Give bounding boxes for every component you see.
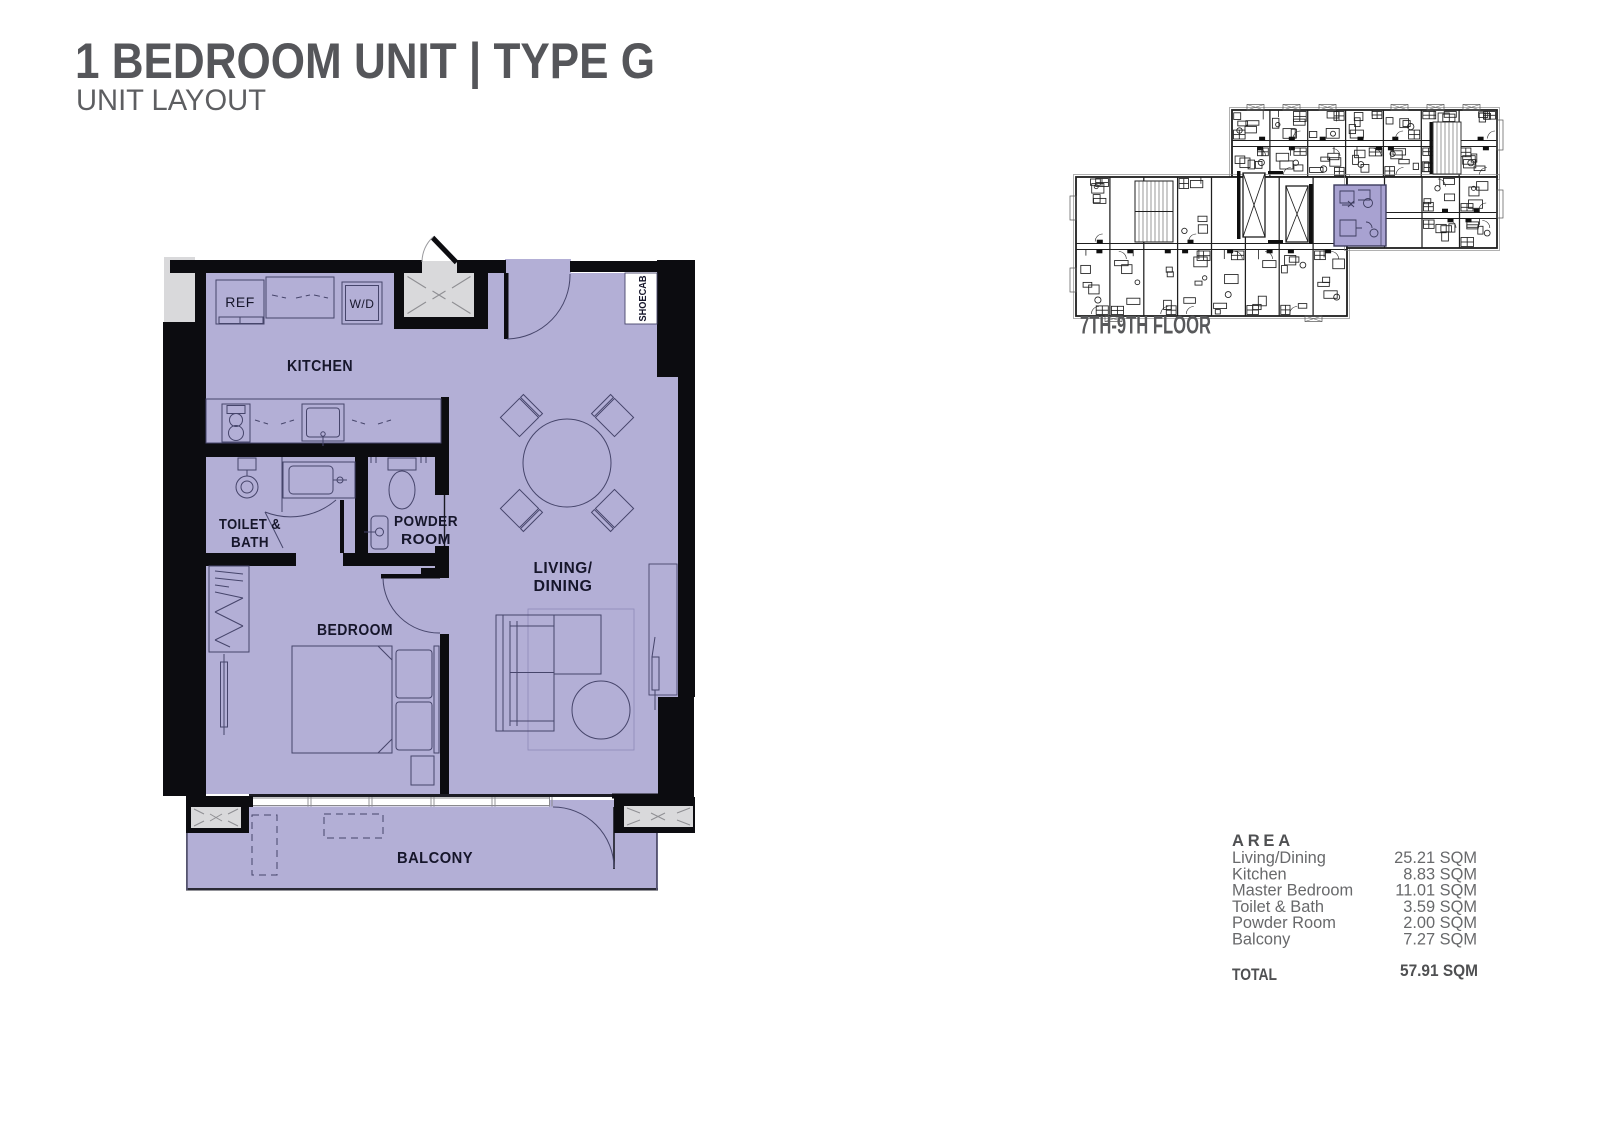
- svg-text:AREA: AREA: [1232, 832, 1294, 850]
- svg-text:REF: REF: [225, 294, 255, 310]
- svg-text:BALCONY: BALCONY: [397, 850, 473, 867]
- svg-text:7.27 SQM: 7.27 SQM: [1403, 931, 1477, 949]
- svg-text:3.59 SQM: 3.59 SQM: [1403, 898, 1477, 916]
- svg-text:BEDROOM: BEDROOM: [317, 622, 393, 639]
- svg-text:Toilet & Bath: Toilet & Bath: [1232, 898, 1324, 916]
- svg-text:DINING: DINING: [534, 578, 593, 595]
- svg-text:TOILET &: TOILET &: [219, 516, 281, 533]
- svg-text:7TH-9TH FLOOR: 7TH-9TH FLOOR: [1080, 312, 1211, 340]
- svg-text:Powder Room: Powder Room: [1232, 914, 1336, 932]
- svg-text:2.00 SQM: 2.00 SQM: [1403, 914, 1477, 932]
- svg-text:8.83 SQM: 8.83 SQM: [1403, 865, 1477, 883]
- svg-text:KITCHEN: KITCHEN: [287, 358, 353, 375]
- svg-text:LIVING/: LIVING/: [534, 560, 593, 577]
- svg-text:Living/Dining: Living/Dining: [1232, 849, 1326, 867]
- svg-text:W/D: W/D: [350, 297, 375, 311]
- svg-text:SHOECAB: SHOECAB: [638, 276, 649, 322]
- svg-text:UNIT LAYOUT: UNIT LAYOUT: [76, 84, 266, 117]
- svg-text:POWDER: POWDER: [394, 513, 458, 530]
- svg-text:25.21 SQM: 25.21 SQM: [1394, 849, 1477, 867]
- svg-text:BATH: BATH: [231, 534, 269, 551]
- svg-text:Master Bedroom: Master Bedroom: [1232, 882, 1353, 900]
- svg-text:TOTAL: TOTAL: [1232, 965, 1277, 984]
- svg-text:ROOM: ROOM: [401, 531, 451, 548]
- svg-text:11.01 SQM: 11.01 SQM: [1395, 882, 1477, 900]
- svg-text:Kitchen: Kitchen: [1232, 865, 1287, 883]
- svg-text:1 BEDROOM UNIT | TYPE G: 1 BEDROOM UNIT | TYPE G: [75, 33, 655, 90]
- svg-text:57.91 SQM: 57.91 SQM: [1400, 961, 1478, 980]
- svg-text:Balcony: Balcony: [1232, 931, 1291, 949]
